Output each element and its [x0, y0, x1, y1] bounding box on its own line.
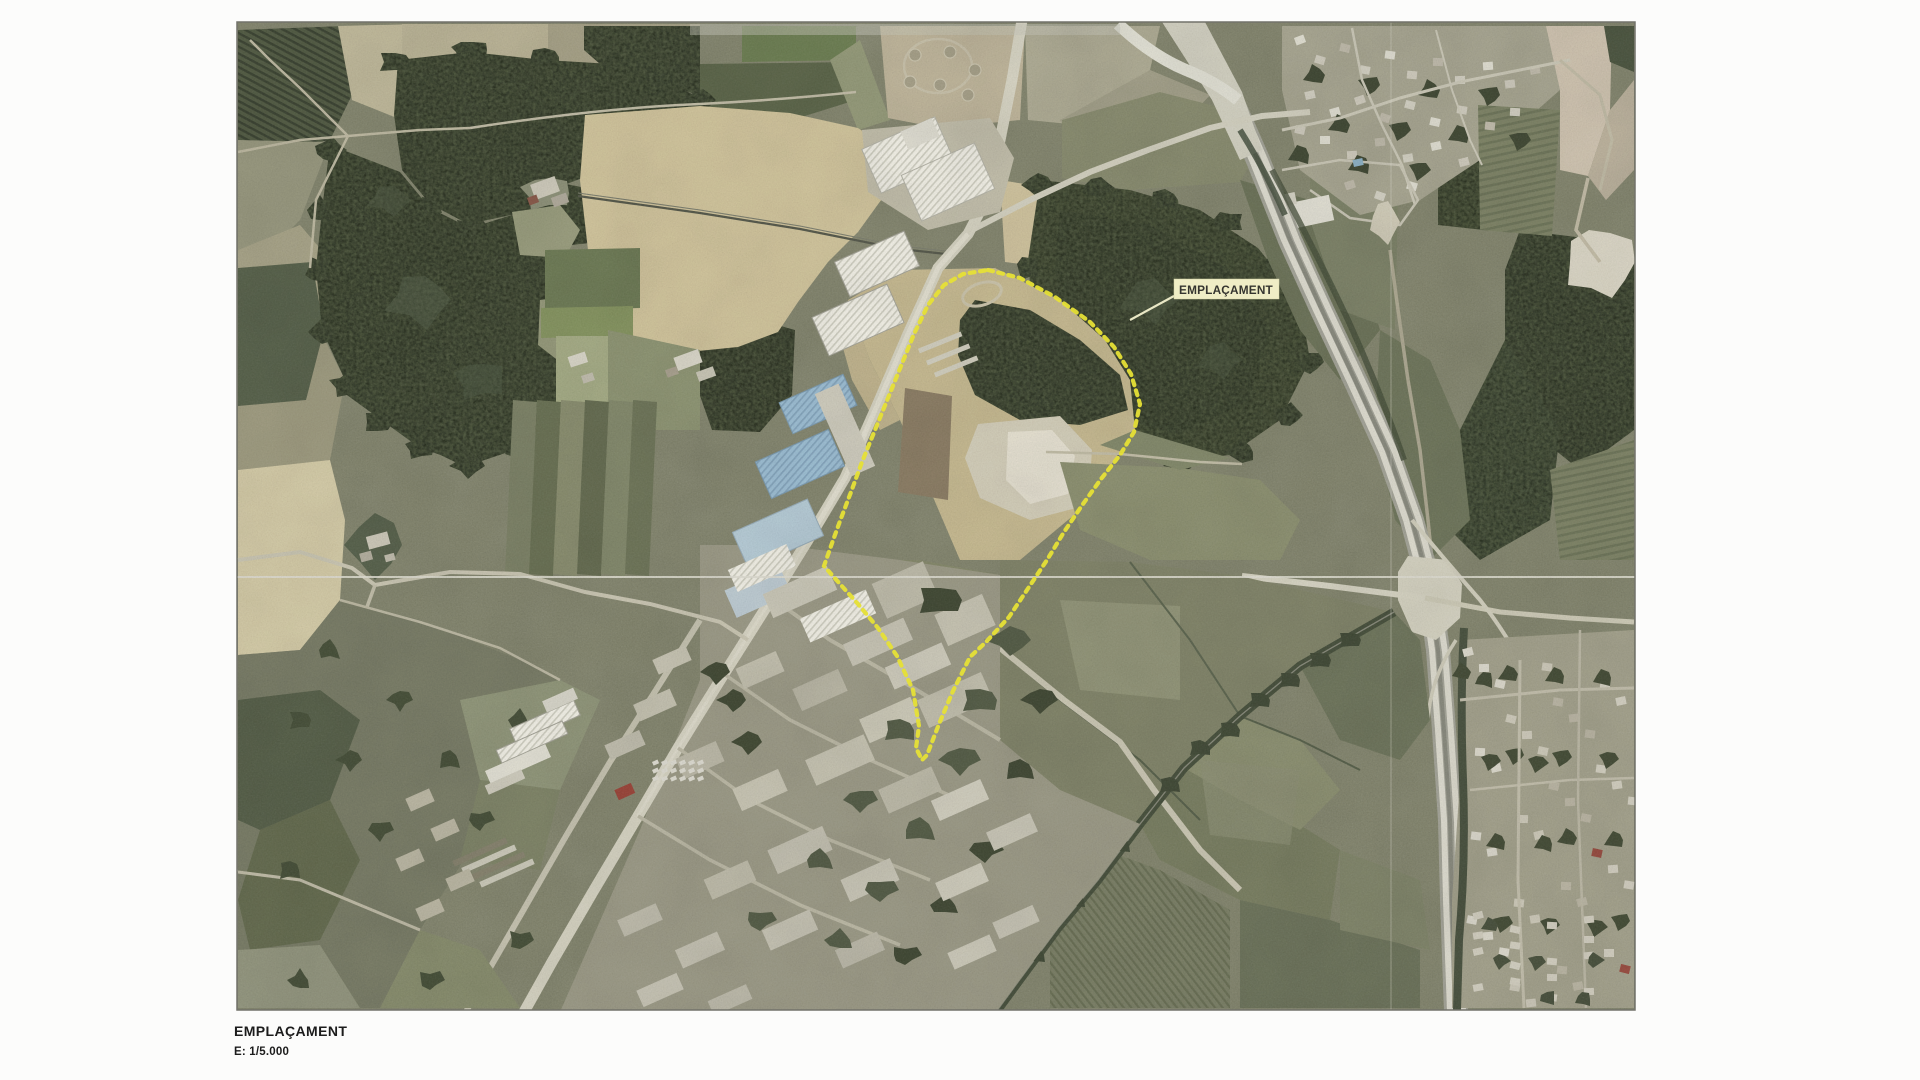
svg-text:E: 1/5.000: E: 1/5.000 — [234, 1046, 289, 1058]
svg-text:EMPLAÇAMENT: EMPLAÇAMENT — [234, 1023, 347, 1039]
svg-text:EMPLAÇAMENT: EMPLAÇAMENT — [1179, 283, 1274, 297]
